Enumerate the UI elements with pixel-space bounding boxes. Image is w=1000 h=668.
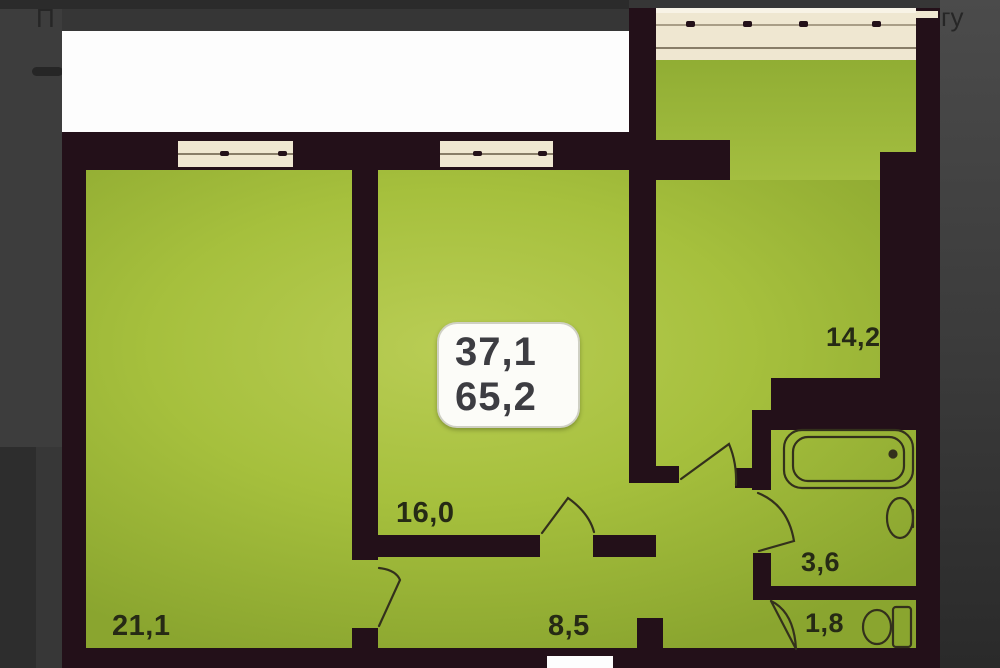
total-area-value: 65,2 xyxy=(455,375,578,420)
door-swing-bathroom xyxy=(758,493,794,551)
bathtub-drain xyxy=(890,451,897,458)
room-area-label: 21,1 xyxy=(112,610,170,643)
door-swing-room-16-0 xyxy=(542,498,594,533)
room-area-label: 8,5 xyxy=(548,610,590,643)
living-area-value: 37,1 xyxy=(455,330,578,375)
room-area-label: 1,8 xyxy=(805,608,844,639)
area-badge: 37,1 65,2 xyxy=(437,322,580,428)
bathtub-inner-rim xyxy=(793,437,904,481)
toilet-icon xyxy=(863,610,891,644)
page: П гу xyxy=(0,0,1000,668)
door-swing-hallway xyxy=(681,444,736,485)
door-swing-wc xyxy=(771,601,796,649)
sink-icon xyxy=(887,498,913,538)
door-swing-room-21-1 xyxy=(379,568,400,626)
room-area-label: 14,2 xyxy=(826,322,881,353)
room-area-label: 3,6 xyxy=(801,547,840,578)
room-area-label: 16,0 xyxy=(396,497,454,530)
toilet-tank xyxy=(893,607,911,647)
